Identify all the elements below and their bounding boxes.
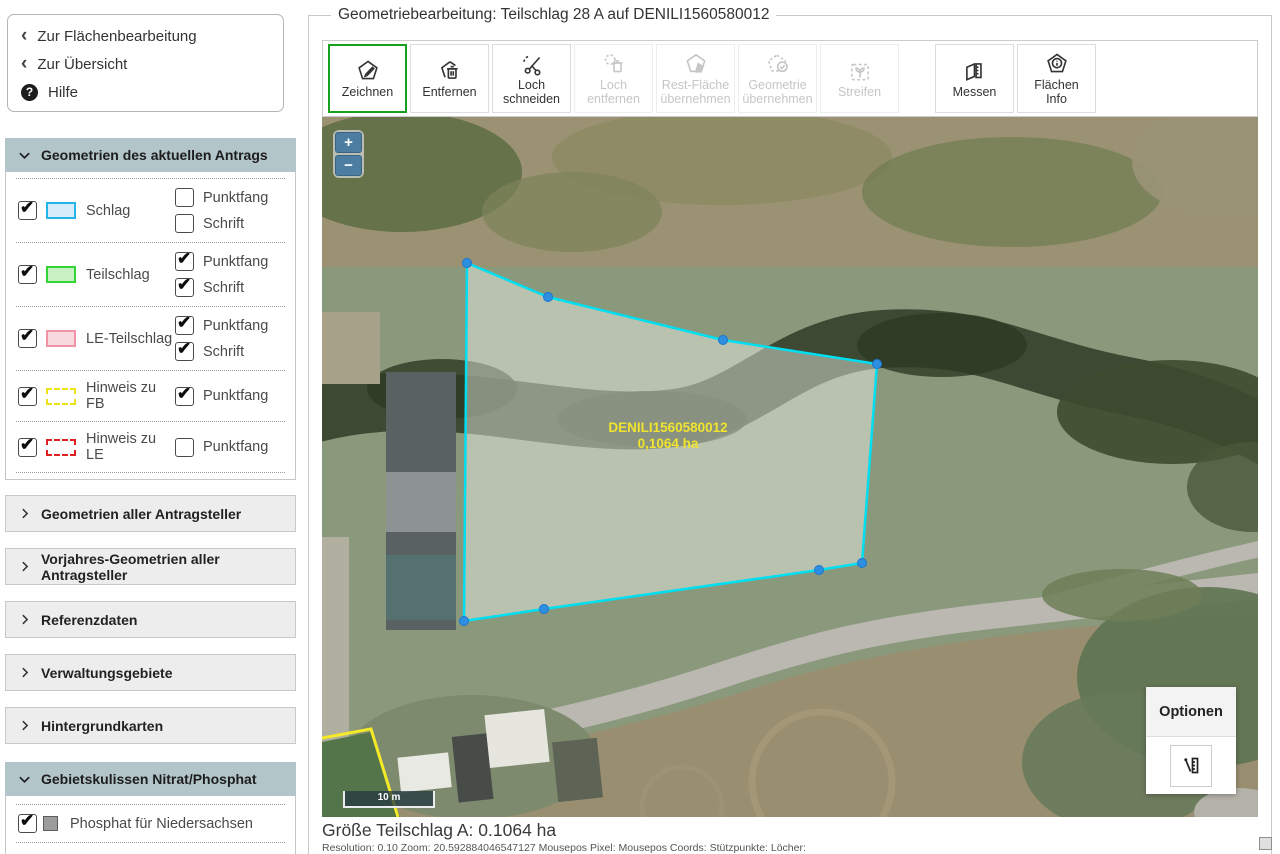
navigation-box: ‹ Zur Flächenbearbeitung ‹ Zur Übersicht… — [7, 14, 284, 112]
chevron-down-icon — [18, 773, 31, 786]
zoom-out-button[interactable]: − — [335, 155, 362, 176]
button-label: Messen — [953, 85, 997, 99]
layer-row-schlag: Schlag Punktfang Schrift — [16, 178, 285, 242]
rest-area-icon — [683, 51, 709, 77]
hinweis-le-swatch — [46, 439, 76, 456]
status-checkbox[interactable] — [1259, 837, 1272, 850]
panel-title: Verwaltungsgebiete — [41, 665, 172, 681]
nav-link-uebersicht[interactable]: ‹ Zur Übersicht — [21, 50, 283, 78]
vertex-handle[interactable] — [815, 566, 824, 575]
panel-body: Phosphat für Niedersachsen — [5, 796, 296, 854]
entfernen-button[interactable]: Entfernen — [410, 44, 489, 113]
option-label: Punktfang — [203, 318, 268, 334]
panel-header-gebietskulissen[interactable]: Gebietskulissen Nitrat/Phosphat — [5, 762, 296, 796]
panel-current-geometries: Geometrien des aktuellen Antrags Schlag … — [5, 138, 296, 480]
layer-checkbox[interactable] — [18, 329, 37, 348]
chevron-left-icon: ‹ — [21, 26, 27, 45]
cut-hole-icon — [519, 51, 545, 77]
scale-bar: 10 m — [343, 791, 435, 808]
nav-link-flaechenbearbeitung[interactable]: ‹ Zur Flächenbearbeitung — [21, 22, 283, 50]
aerial-basemap[interactable] — [322, 117, 1258, 817]
panel-header-vorjahres-geometrien[interactable]: Vorjahres-Geometrien aller Antragsteller — [5, 548, 296, 585]
flaechen-info-button[interactable]: Flächen Info — [1017, 44, 1096, 113]
panel-header-current-geometries[interactable]: Geometrien des aktuellen Antrags — [5, 138, 296, 172]
punktfang-checkbox[interactable] — [175, 316, 194, 335]
parcel-size-status: Größe Teilschlag A: 0.1064 ha — [322, 820, 556, 841]
nav-link-label: Zur Flächenbearbeitung — [37, 28, 196, 45]
vertex-handle[interactable] — [463, 259, 472, 268]
help-icon: ? — [21, 84, 38, 101]
button-label: Rest-Fläche übernehmen — [660, 78, 730, 107]
layer-checkbox[interactable] — [18, 814, 37, 833]
geometry-editor-window: ‹ Zur Flächenbearbeitung ‹ Zur Übersicht… — [0, 0, 1280, 854]
hinweis-fb-swatch — [46, 388, 76, 405]
snap-tolerance-icon — [1179, 754, 1203, 778]
nav-link-label: Zur Übersicht — [37, 56, 127, 73]
zoom-in-button[interactable]: + — [335, 132, 362, 153]
punktfang-checkbox[interactable] — [175, 252, 194, 271]
vertex-handle[interactable] — [544, 293, 553, 302]
panel-title: Geometrien des aktuellen Antrags — [41, 147, 268, 163]
button-label: Entfernen — [422, 85, 476, 99]
teilschlag-swatch — [46, 266, 76, 283]
geometry-toolbar: Zeichnen Entfernen Loch schnei — [322, 40, 1258, 117]
button-label: Flächen Info — [1034, 78, 1078, 107]
chevron-left-icon: ‹ — [21, 54, 27, 73]
chevron-down-icon — [18, 149, 31, 162]
panel-header-referenzdaten[interactable]: Referenzdaten — [5, 601, 296, 638]
phosphat-swatch — [43, 816, 58, 831]
messen-button[interactable]: Messen — [935, 44, 1014, 113]
nav-link-label: Hilfe — [48, 84, 78, 101]
remove-hole-icon — [601, 51, 627, 77]
vertex-handle[interactable] — [858, 559, 867, 568]
map-viewport[interactable]: DENILI1560580012 0,1064 ha + − 10 m Opti… — [322, 117, 1258, 817]
layer-label: Schlag — [86, 203, 175, 219]
geometrie-uebernehmen-button[interactable]: Geometrie übernehmen — [738, 44, 817, 113]
chevron-right-icon — [19, 507, 31, 520]
button-label: Geometrie übernehmen — [742, 78, 812, 107]
le-teilschlag-swatch — [46, 330, 76, 347]
area-info-icon — [1044, 51, 1070, 77]
draw-icon — [355, 58, 381, 84]
snap-tolerance-button[interactable] — [1170, 745, 1212, 787]
layer-label: Teilschlag — [86, 267, 175, 283]
schrift-checkbox[interactable] — [175, 342, 194, 361]
panel-body: Schlag Punktfang Schrift Teilschlag Punk… — [5, 172, 296, 480]
vertex-handle[interactable] — [719, 336, 728, 345]
layer-row-hinweis-fb: Hinweis zu FB Punktfang — [16, 370, 285, 421]
layer-checkbox[interactable] — [18, 201, 37, 220]
measure-icon — [962, 58, 988, 84]
chevron-right-icon — [19, 666, 31, 679]
button-label: Loch entfernen — [587, 78, 640, 107]
panel-title: Referenzdaten — [41, 612, 137, 628]
streifen-button[interactable]: Streifen — [820, 44, 899, 113]
button-label: Loch schneiden — [503, 78, 560, 107]
layer-row-le-teilschlag: LE-Teilschlag Punktfang Schrift — [16, 306, 285, 370]
button-label: Streifen — [838, 85, 881, 99]
option-label: Punktfang — [203, 190, 268, 206]
layer-row-hinweis-le: Hinweis zu LE Punktfang — [16, 421, 285, 473]
option-label: Schrift — [203, 344, 244, 360]
nav-link-hilfe[interactable]: ? Hilfe — [21, 78, 283, 106]
delete-geometry-icon — [437, 58, 463, 84]
punktfang-checkbox[interactable] — [175, 387, 194, 406]
punktfang-checkbox[interactable] — [175, 438, 194, 457]
schrift-checkbox[interactable] — [175, 214, 194, 233]
panel-gebietskulissen: Gebietskulissen Nitrat/Phosphat Phosphat… — [5, 762, 296, 854]
map-zoom-control: + − — [333, 130, 364, 178]
panel-header-geometrien-aller-antragsteller[interactable]: Geometrien aller Antragsteller — [5, 495, 296, 532]
option-label: Punktfang — [203, 254, 268, 270]
layer-checkbox[interactable] — [18, 438, 37, 457]
option-label: Punktfang — [203, 439, 268, 455]
layer-label: Phosphat für Niedersachsen — [70, 816, 283, 832]
map-debug-status: Resolution: 0.10 Zoom: 20.59288404654712… — [322, 842, 806, 854]
vertex-handle[interactable] — [540, 605, 549, 614]
chevron-right-icon — [19, 560, 31, 573]
layer-label: Hinweis zu LE — [86, 431, 175, 463]
option-label: Schrift — [203, 216, 244, 232]
schlag-swatch — [46, 202, 76, 219]
loch-entfernen-button[interactable]: Loch entfernen — [574, 44, 653, 113]
option-label: Punktfang — [203, 388, 268, 404]
vertex-handle[interactable] — [460, 617, 469, 626]
accept-geometry-icon — [765, 51, 791, 77]
schrift-checkbox[interactable] — [175, 278, 194, 297]
layer-checkbox[interactable] — [18, 265, 37, 284]
strips-icon — [847, 58, 873, 84]
panel-header-hintergrundkarten[interactable]: Hintergrundkarten — [5, 707, 296, 744]
page-title: Geometriebearbeitung: Teilschlag 28 A au… — [331, 6, 776, 24]
panel-title: Hintergrundkarten — [41, 718, 163, 734]
layer-row-teilschlag: Teilschlag Punktfang Schrift — [16, 242, 285, 306]
layer-label: Hinweis zu FB — [86, 380, 175, 412]
layer-row-phosphat: Phosphat für Niedersachsen — [16, 804, 285, 843]
panel-title: Geometrien aller Antragsteller — [41, 506, 241, 522]
panel-header-verwaltungsgebiete[interactable]: Verwaltungsgebiete — [5, 654, 296, 691]
chevron-right-icon — [19, 613, 31, 626]
loch-schneiden-button[interactable]: Loch schneiden — [492, 44, 571, 113]
vertex-handle[interactable] — [873, 360, 882, 369]
layer-checkbox[interactable] — [18, 387, 37, 406]
panel-title: Vorjahres-Geometrien aller Antragsteller — [41, 551, 295, 583]
options-panel: Optionen — [1146, 687, 1236, 794]
option-label: Schrift — [203, 280, 244, 296]
panel-title: Gebietskulissen Nitrat/Phosphat — [41, 771, 257, 787]
button-label: Zeichnen — [342, 85, 393, 99]
options-panel-title: Optionen — [1146, 687, 1236, 737]
layer-label: LE-Teilschlag — [86, 331, 175, 347]
zeichnen-button[interactable]: Zeichnen — [328, 44, 407, 113]
chevron-right-icon — [19, 719, 31, 732]
punktfang-checkbox[interactable] — [175, 188, 194, 207]
rest-flaeche-uebernehmen-button[interactable]: Rest-Fläche übernehmen — [656, 44, 735, 113]
